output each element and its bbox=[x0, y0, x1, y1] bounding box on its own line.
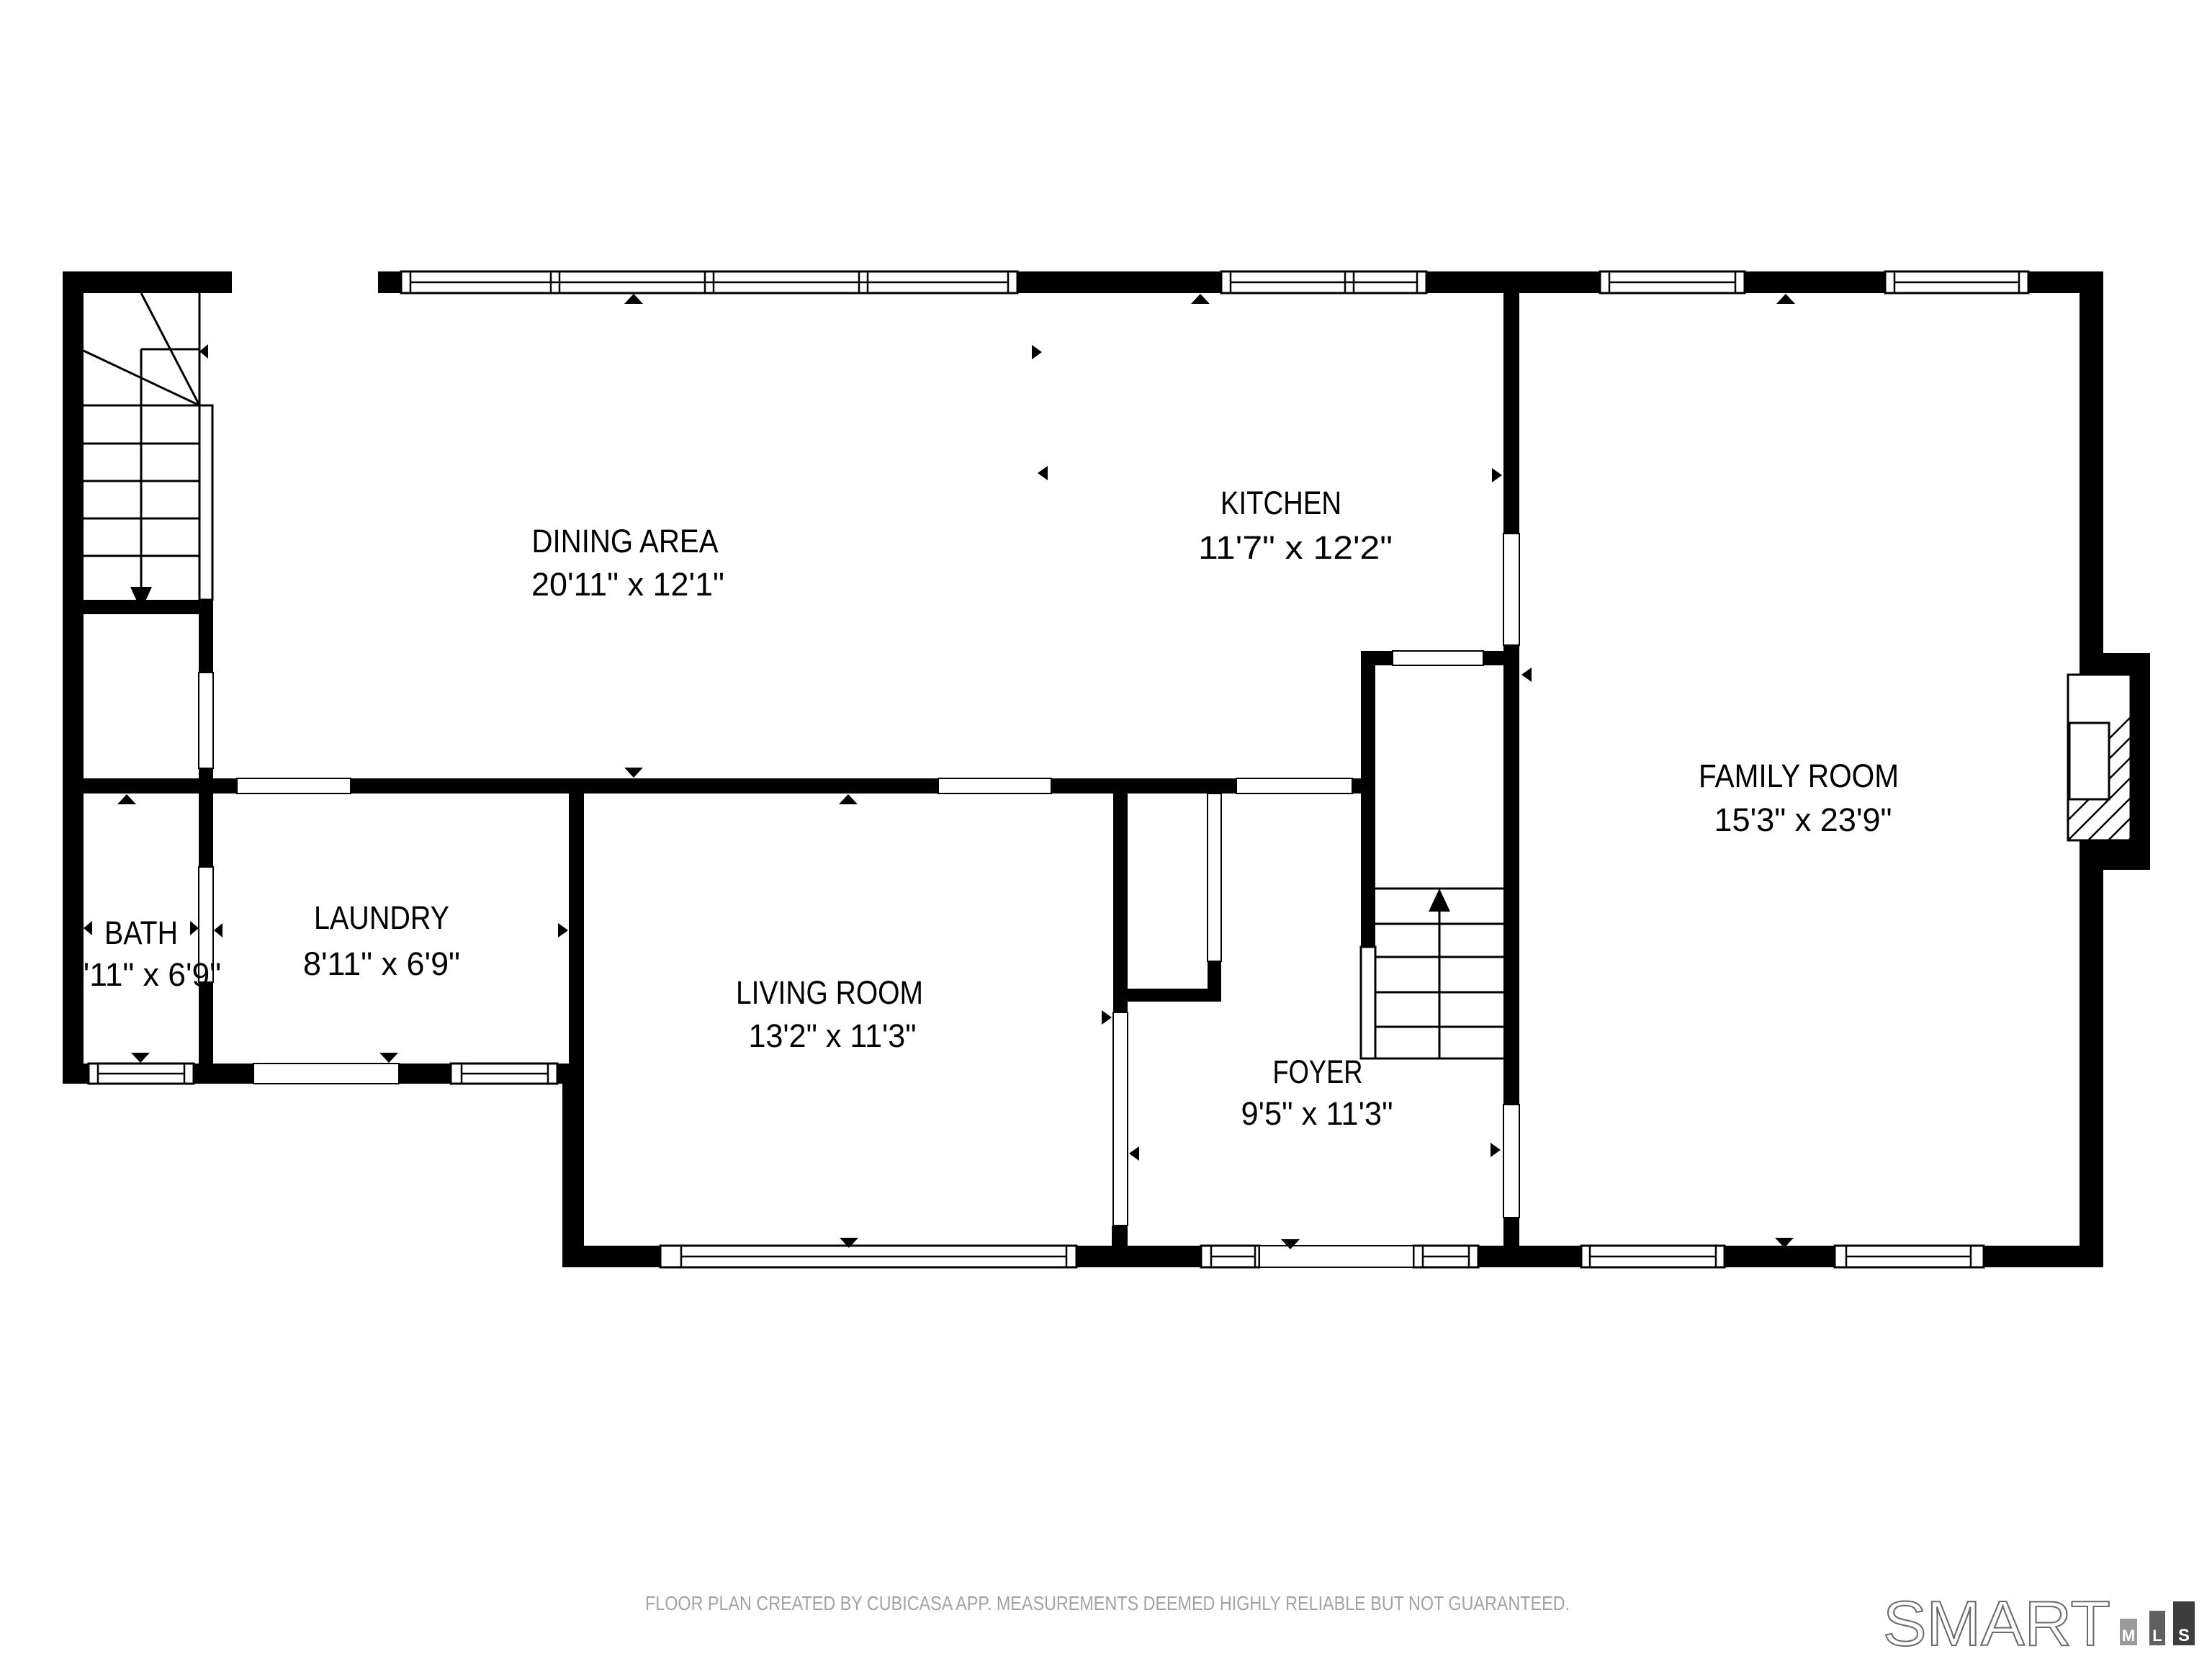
svg-text:15'3" x 23'9": 15'3" x 23'9" bbox=[1714, 801, 1892, 838]
svg-text:L: L bbox=[2152, 1627, 2162, 1645]
svg-text:LAUNDRY: LAUNDRY bbox=[314, 899, 449, 936]
svg-text:FAMILY ROOM: FAMILY ROOM bbox=[1699, 757, 1899, 794]
svg-text:DINING AREA: DINING AREA bbox=[532, 523, 719, 559]
svg-text:11'7" x 12'2": 11'7" x 12'2" bbox=[1198, 529, 1393, 566]
svg-text:13'2" x 11'3": 13'2" x 11'3" bbox=[749, 1017, 917, 1054]
svg-text:S: S bbox=[2178, 1626, 2190, 1645]
svg-text:20'11" x 12'1": 20'11" x 12'1" bbox=[531, 566, 724, 603]
svg-text:FLOOR PLAN CREATED BY CUBICASA: FLOOR PLAN CREATED BY CUBICASA APP. MEAS… bbox=[645, 1592, 1570, 1614]
svg-text:M: M bbox=[2122, 1627, 2135, 1645]
svg-text:5'11" x 6'9": 5'11" x 6'9" bbox=[66, 956, 221, 993]
svg-text:KITCHEN: KITCHEN bbox=[1220, 485, 1341, 521]
svg-text:SMART: SMART bbox=[1883, 1588, 2110, 1659]
svg-text:FOYER: FOYER bbox=[1273, 1053, 1363, 1090]
svg-text:LIVING ROOM: LIVING ROOM bbox=[736, 974, 923, 1011]
svg-text:8'11" x 6'9": 8'11" x 6'9" bbox=[303, 945, 460, 982]
svg-text:9'5" x 11'3": 9'5" x 11'3" bbox=[1241, 1095, 1393, 1132]
svg-text:BATH: BATH bbox=[104, 914, 178, 951]
